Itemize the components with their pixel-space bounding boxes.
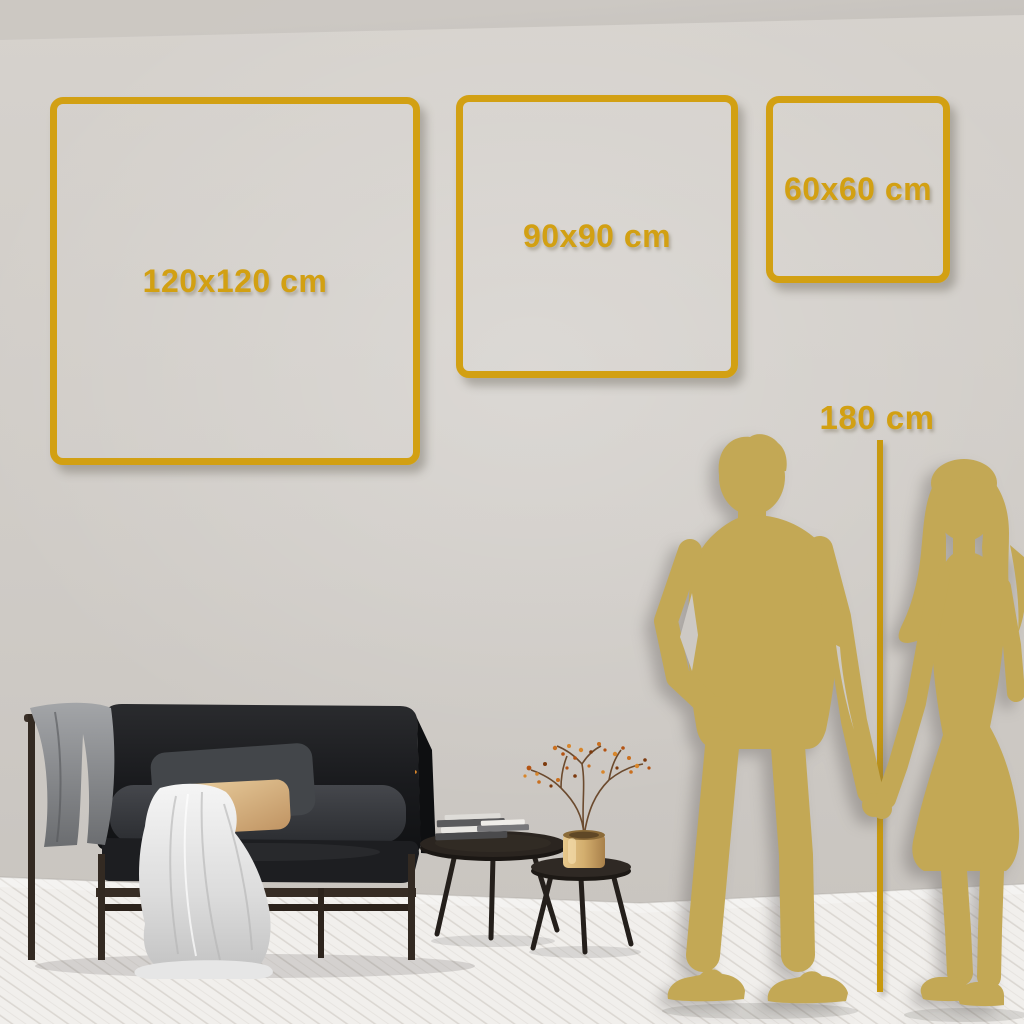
woman-hand xyxy=(872,799,892,819)
woman-silhouette xyxy=(872,459,1024,1006)
dried-branch xyxy=(531,746,643,836)
branch-berries xyxy=(415,742,651,788)
man-right-shoe xyxy=(768,971,848,1003)
woman-right-leg-back xyxy=(989,871,992,977)
gold-frame-90: 90x90 cm xyxy=(456,95,738,378)
vase-opening xyxy=(569,832,599,839)
sofa xyxy=(10,692,480,982)
man-left-shoe xyxy=(668,969,745,1001)
frame-120-label: 120x120 cm xyxy=(143,263,328,300)
sofa-leg-3 xyxy=(318,888,324,958)
man-hand-on-hip xyxy=(705,696,727,718)
ceiling-edge xyxy=(0,0,1024,42)
gold-frame-120: 120x120 cm xyxy=(50,97,420,465)
sofa-left-post xyxy=(28,714,35,960)
sofa-leg-1 xyxy=(98,854,105,960)
couple-floor-shadow-1 xyxy=(662,1003,858,1019)
frame-90-label: 90x90 cm xyxy=(523,218,671,255)
woman-left-arm xyxy=(1002,587,1016,693)
couple-floor-shadow-2 xyxy=(904,1008,1024,1022)
frame-60-label: 60x60 cm xyxy=(784,171,932,208)
man-left-leg xyxy=(703,747,722,955)
wall-art-size-guide: 120x120 cm 90x90 cm 60x60 cm xyxy=(0,0,1024,1024)
vase-highlight xyxy=(568,838,576,864)
woman-left-leg-front xyxy=(954,871,960,973)
man-silhouette xyxy=(666,434,886,1003)
couple-silhouette xyxy=(640,425,1024,1024)
man-right-leg xyxy=(788,747,798,955)
sofa-leg-4 xyxy=(408,854,415,960)
gold-frame-60: 60x60 cm xyxy=(766,96,950,283)
nesting-coffee-tables xyxy=(415,738,665,960)
grey-blanket xyxy=(30,703,114,847)
